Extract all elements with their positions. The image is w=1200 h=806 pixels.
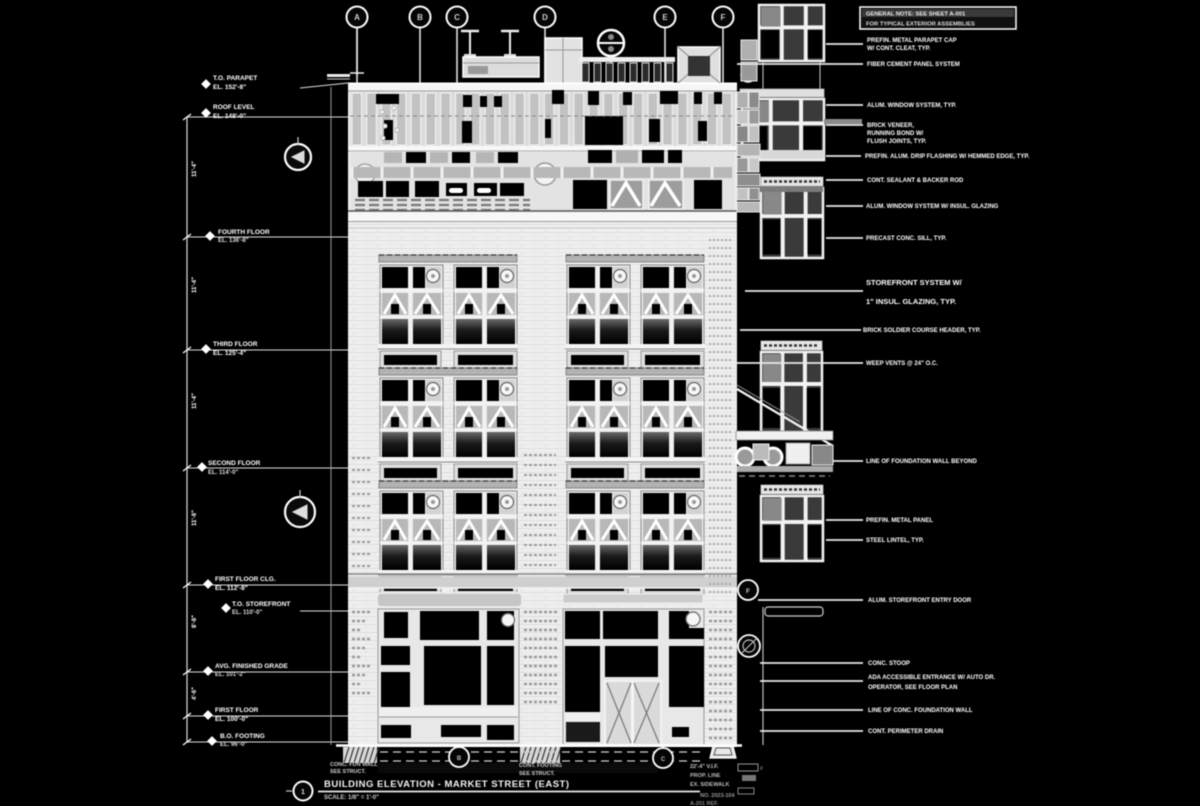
svg-text:W/ CONT. CLEAT, TYP.: W/ CONT. CLEAT, TYP. bbox=[867, 46, 931, 52]
svg-text:CONT. SEALANT & BACKER ROD: CONT. SEALANT & BACKER ROD bbox=[867, 178, 964, 184]
svg-text:EL. 101'-2": EL. 101'-2" bbox=[215, 672, 246, 678]
svg-text:FIBER CEMENT PANEL SYSTEM: FIBER CEMENT PANEL SYSTEM bbox=[867, 62, 960, 68]
svg-text:11'-4": 11'-4" bbox=[192, 161, 198, 177]
svg-text:BUILDING ELEVATION - MARKET ST: BUILDING ELEVATION - MARKET STREET (EAST… bbox=[324, 779, 570, 790]
svg-text:STOREFRONT SYSTEM W/: STOREFRONT SYSTEM W/ bbox=[866, 278, 963, 287]
svg-text:F: F bbox=[721, 13, 726, 22]
svg-text:EL. 96'-0": EL. 96'-0" bbox=[220, 742, 247, 748]
svg-text:#: # bbox=[760, 766, 763, 772]
svg-text:E: E bbox=[662, 13, 668, 22]
svg-text:FOR TYPICAL EXTERIOR ASSEMBLIE: FOR TYPICAL EXTERIOR ASSEMBLIES bbox=[866, 22, 975, 28]
svg-text:SECOND FLOOR: SECOND FLOOR bbox=[208, 460, 261, 467]
svg-text:AVG. FINISHED GRADE: AVG. FINISHED GRADE bbox=[215, 663, 288, 670]
svg-text:ADA ACCESSIBLE ENTRANCE W/ AUT: ADA ACCESSIBLE ENTRANCE W/ AUTO DR. bbox=[868, 675, 996, 681]
svg-text:NO. 2023-104: NO. 2023-104 bbox=[700, 793, 735, 799]
svg-text:ALUM. WINDOW SYSTEM W/ INSUL.: ALUM. WINDOW SYSTEM W/ INSUL. GLAZING bbox=[866, 204, 999, 210]
svg-text:EL. 114'-0": EL. 114'-0" bbox=[208, 470, 238, 476]
svg-text:WEEP VENTS @ 24" O.C.: WEEP VENTS @ 24" O.C. bbox=[866, 361, 938, 367]
svg-text:PRECAST CONC. SILL, TYP.: PRECAST CONC. SILL, TYP. bbox=[866, 236, 947, 242]
svg-text:B: B bbox=[417, 13, 423, 22]
svg-text:SEE STRUCT.: SEE STRUCT. bbox=[519, 771, 555, 777]
svg-text:SEE STRUCT.: SEE STRUCT. bbox=[330, 769, 366, 775]
svg-text:PREFIN. METAL PANEL: PREFIN. METAL PANEL bbox=[866, 518, 933, 524]
svg-text:T.O. STOREFRONT: T.O. STOREFRONT bbox=[232, 601, 290, 608]
svg-text:FOURTH FLOOR: FOURTH FLOOR bbox=[218, 229, 270, 236]
svg-text:B.O. FOOTING: B.O. FOOTING bbox=[220, 733, 265, 740]
svg-text:CONC. STOOP: CONC. STOOP bbox=[868, 661, 910, 667]
svg-text:FIRST FLOOR CLG.: FIRST FLOOR CLG. bbox=[215, 576, 276, 583]
svg-text:THIRD FLOOR: THIRD FLOOR bbox=[213, 341, 258, 348]
svg-text:EL. 125'-4": EL. 125'-4" bbox=[213, 350, 246, 357]
svg-text:CONC. FDN WALL: CONC. FDN WALL bbox=[330, 762, 378, 768]
svg-text:11'-4": 11'-4" bbox=[192, 393, 198, 409]
svg-text:EL. 112'-8": EL. 112'-8" bbox=[215, 585, 248, 592]
svg-text:4'-6": 4'-6" bbox=[192, 687, 198, 700]
svg-text:BRICK SOLDIER COURSE HEADER, T: BRICK SOLDIER COURSE HEADER, TYP. bbox=[863, 328, 981, 334]
svg-text:11'-8": 11'-8" bbox=[192, 510, 198, 526]
svg-text:GENERAL NOTE: SEE SHEET A-001: GENERAL NOTE: SEE SHEET A-001 bbox=[866, 12, 966, 18]
svg-text:CONT. PERIMETER DRAIN: CONT. PERIMETER DRAIN bbox=[868, 729, 943, 735]
svg-text:EL. 152'-8": EL. 152'-8" bbox=[213, 84, 246, 91]
svg-text:EL. 110'-0": EL. 110'-0" bbox=[232, 610, 262, 616]
svg-text:FIRST FLOOR: FIRST FLOOR bbox=[215, 707, 259, 714]
svg-text:ROOF LEVEL: ROOF LEVEL bbox=[213, 104, 255, 111]
svg-text:LINE OF FOUNDATION WALL BEYOND: LINE OF FOUNDATION WALL BEYOND bbox=[866, 459, 977, 465]
svg-text:A: A bbox=[354, 13, 360, 22]
svg-text:PREFIN. ALUM. DRIP FLASHING W/: PREFIN. ALUM. DRIP FLASHING W/ HEMMED ED… bbox=[865, 154, 1030, 160]
svg-text:STEEL LINTEL, TYP.: STEEL LINTEL, TYP. bbox=[866, 538, 924, 544]
svg-text:EL. 148'-0": EL. 148'-0" bbox=[213, 113, 246, 120]
svg-text:FLUSH JOINTS, TYP.: FLUSH JOINTS, TYP. bbox=[867, 139, 927, 145]
svg-text:11'-4": 11'-4" bbox=[192, 277, 198, 293]
svg-text:RUNNING BOND W/: RUNNING BOND W/ bbox=[867, 131, 924, 137]
svg-text:ALUM. WINDOW SYSTEM, TYP.: ALUM. WINDOW SYSTEM, TYP. bbox=[867, 103, 957, 109]
svg-text:PROP. LINE: PROP. LINE bbox=[690, 773, 721, 779]
svg-text:EL. 136'-8": EL. 136'-8" bbox=[218, 238, 249, 244]
svg-text:C: C bbox=[661, 757, 666, 763]
svg-text:EL. 100'-0": EL. 100'-0" bbox=[215, 716, 248, 723]
svg-text:BRICK VENEER,: BRICK VENEER, bbox=[867, 123, 914, 129]
svg-text:LINE OF CONC. FOUNDATION WALL: LINE OF CONC. FOUNDATION WALL bbox=[868, 708, 973, 714]
svg-text:CONT. FOOTING: CONT. FOOTING bbox=[519, 763, 562, 769]
svg-text:A-201 REF.: A-201 REF. bbox=[690, 801, 719, 806]
svg-text:T.O. PARAPET: T.O. PARAPET bbox=[213, 75, 257, 82]
svg-text:ALUM. STOREFRONT ENTRY DOOR: ALUM. STOREFRONT ENTRY DOOR bbox=[868, 598, 972, 604]
svg-text:OPERATOR, SEE FLOOR PLAN: OPERATOR, SEE FLOOR PLAN bbox=[868, 685, 957, 691]
svg-text:22'-4" V.I.F.: 22'-4" V.I.F. bbox=[690, 764, 719, 770]
svg-text:8'-8": 8'-8" bbox=[192, 615, 198, 628]
svg-text:1: 1 bbox=[301, 789, 305, 796]
svg-text:D: D bbox=[542, 13, 548, 22]
svg-text:1" INSUL. GLAZING, TYP.: 1" INSUL. GLAZING, TYP. bbox=[866, 297, 956, 306]
svg-text:C: C bbox=[454, 13, 460, 22]
svg-text:SCALE: 1/8" = 1'-0": SCALE: 1/8" = 1'-0" bbox=[324, 795, 379, 801]
svg-text:EX. SIDEWALK: EX. SIDEWALK bbox=[690, 782, 729, 788]
svg-text:F: F bbox=[746, 588, 750, 595]
svg-text:PREFIN. METAL PARAPET CAP: PREFIN. METAL PARAPET CAP bbox=[867, 38, 957, 44]
svg-text:B: B bbox=[457, 756, 462, 762]
